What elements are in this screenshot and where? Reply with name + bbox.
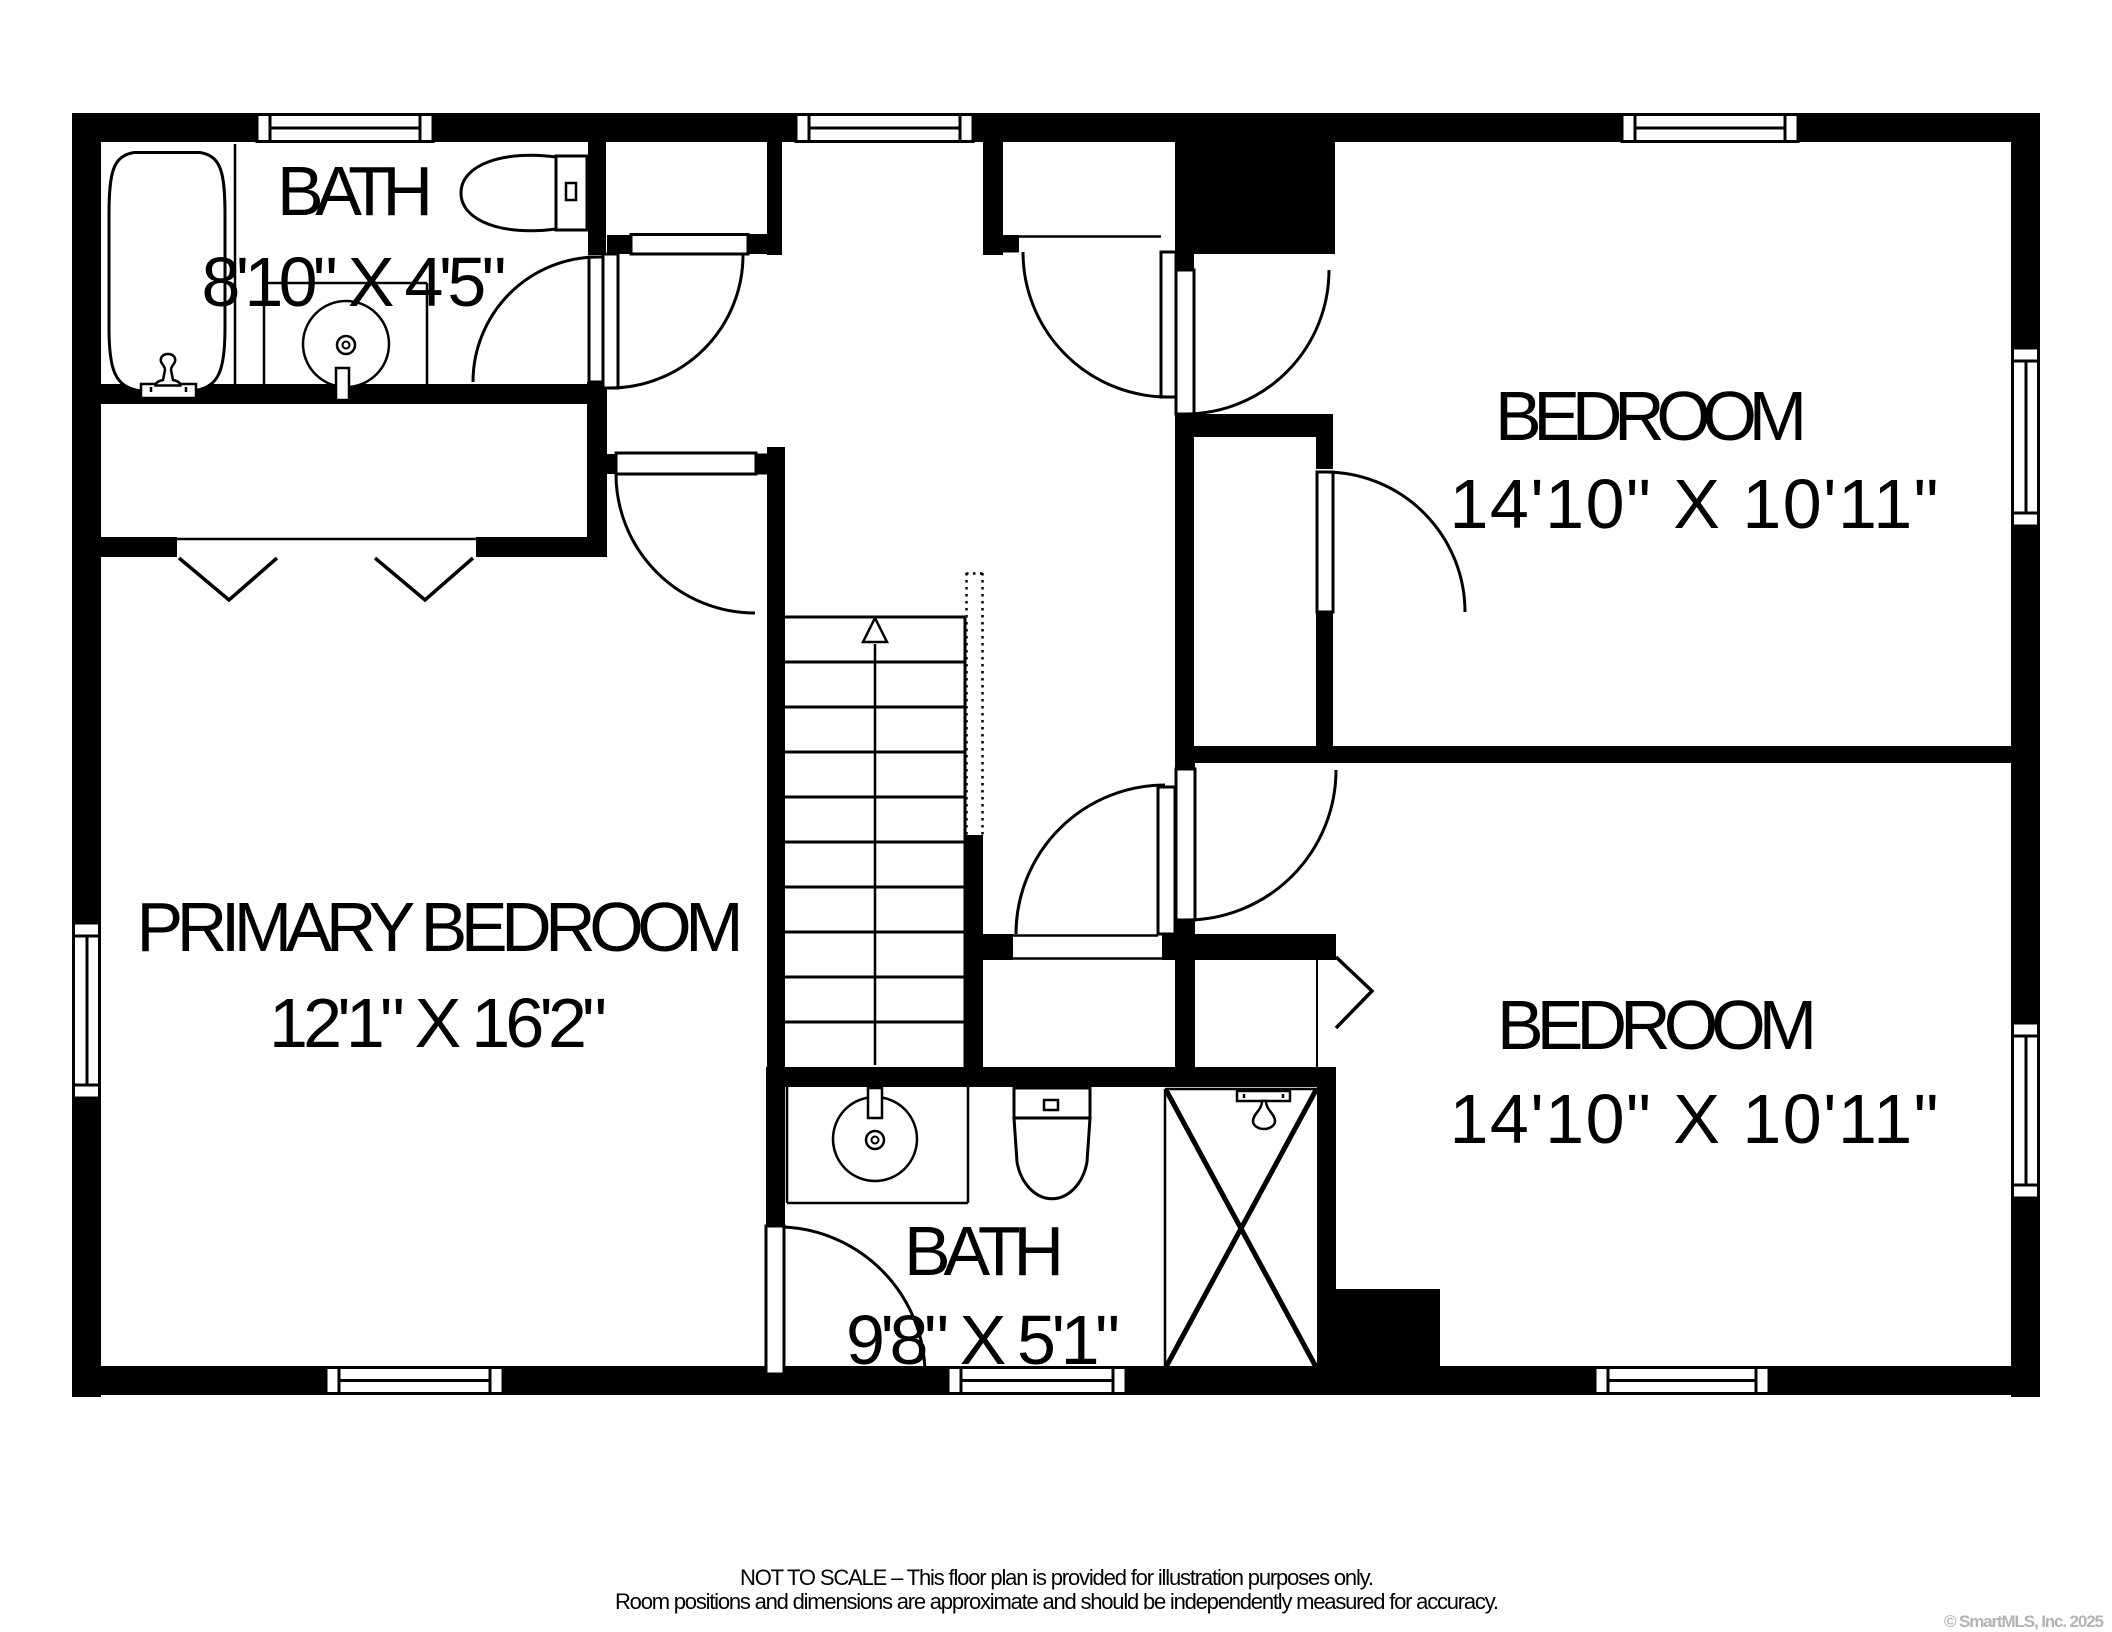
svg-text:BATH: BATH: [277, 152, 433, 230]
svg-text:PRIMARY BEDROOM: PRIMARY BEDROOM: [137, 888, 744, 966]
svg-text:14'10" X 10'11": 14'10" X 10'11": [1450, 1080, 1939, 1158]
svg-text:NOT TO SCALE – This floor plan: NOT TO SCALE – This floor plan is provid…: [740, 1565, 1374, 1590]
svg-text:BEDROOM: BEDROOM: [1497, 986, 1817, 1064]
svg-text:12'1" X 16'2": 12'1" X 16'2": [269, 984, 607, 1062]
svg-text:8'10" X 4'5": 8'10" X 4'5": [202, 243, 507, 321]
svg-text:9'8" X 5'1": 9'8" X 5'1": [846, 1301, 1120, 1379]
svg-text:BATH: BATH: [904, 1212, 1064, 1290]
svg-text:14'10" X 10'11": 14'10" X 10'11": [1450, 465, 1939, 543]
svg-text:Room positions and dimensions: Room positions and dimensions are approx…: [615, 1589, 1499, 1614]
svg-text:© SmartMLS, Inc. 2025: © SmartMLS, Inc. 2025: [1944, 1612, 2104, 1631]
svg-text:BEDROOM: BEDROOM: [1495, 377, 1807, 455]
